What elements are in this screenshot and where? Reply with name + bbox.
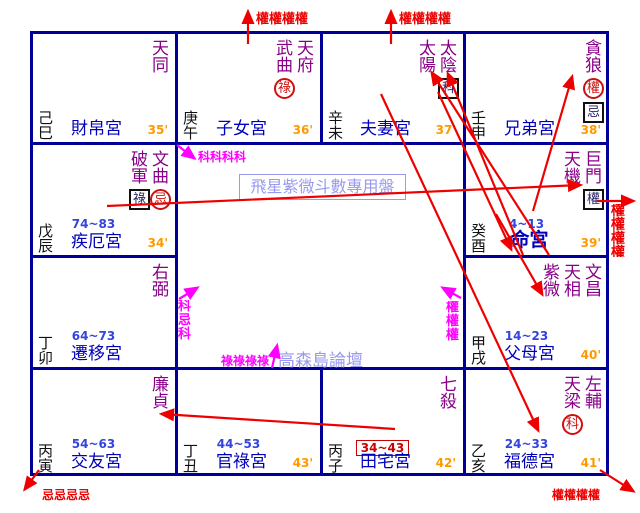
transform-label: 科忌科 (178, 300, 191, 342)
char: 府 (297, 58, 314, 75)
transform-label: 權權權權 (552, 486, 600, 503)
palace-子女宮: 武曲祿天府庚午子女宮36' (176, 32, 321, 143)
palace-疾厄宮: 破軍祿文曲忌74~83戊辰疾厄宮34' (31, 143, 176, 256)
star-name: 左輔 (585, 377, 602, 411)
star-name: 天相 (564, 265, 581, 299)
star-column: 七殺 (438, 377, 459, 411)
char: 陽 (419, 58, 436, 75)
self-transform-circle-mark: 權 (583, 78, 604, 99)
star-column: 天同 (150, 41, 171, 75)
char: 科 (178, 328, 191, 342)
star-group: 天機巨門權 (562, 152, 604, 210)
char: 忌 (178, 314, 191, 328)
star-column: 文曲忌 (150, 152, 171, 210)
inward-transform-box-mark: 權 (583, 189, 604, 210)
star-column: 廉貞 (150, 377, 171, 411)
star-column: 天機 (562, 152, 583, 210)
star-group: 紫微天相文昌 (541, 265, 604, 299)
star-column: 武曲祿 (274, 41, 295, 99)
char: 權 (611, 232, 625, 246)
transform-label: 權權權 (446, 301, 459, 343)
palace-田宅宮: 七殺34~43丙子田宅宮42' (321, 368, 464, 476)
char: 殺 (440, 394, 457, 411)
char: 權 (446, 301, 459, 315)
palace-name: 福德宮 (464, 447, 595, 472)
palace-name: 交友宮 (31, 447, 162, 472)
char: 梁 (564, 394, 581, 411)
star-name: 文昌 (585, 265, 602, 299)
star-name: 太陽 (419, 41, 436, 75)
star-column: 左輔 (583, 377, 604, 435)
star-column: 右弼 (150, 265, 171, 299)
star-column: 天相 (562, 265, 583, 299)
self-transform-circle-mark: 祿 (274, 78, 295, 99)
palace-name: 遷移宮 (31, 339, 162, 364)
palace-命宮: 天機巨門權4~13癸酉命宮39' (464, 143, 609, 256)
star-name: 廉貞 (152, 377, 169, 411)
star-column: 天府 (295, 41, 316, 99)
star-name: 紫微 (543, 265, 560, 299)
palace-name: 官祿宮 (176, 447, 307, 472)
palace-交友宮: 廉貞54~63丙寅交友宮 (31, 368, 176, 476)
star-column: 貪狼權忌 (583, 41, 604, 123)
star-column: 紫微 (541, 265, 562, 299)
star-group: 七殺 (438, 377, 459, 411)
transform-label: 祿祿祿祿 (221, 352, 269, 369)
palace-name: 父母宮 (464, 339, 595, 364)
star-column: 天梁科 (562, 377, 583, 435)
palace-夫妻宮: 太陽太陰科辛未夫妻宮37' (321, 32, 464, 143)
minute-mark: 42' (436, 456, 456, 470)
minute-mark: 43' (293, 456, 313, 470)
star-column: 巨門權 (583, 152, 604, 210)
self-transform-circle-mark: 科 (562, 414, 583, 435)
star-name: 貪狼 (585, 41, 602, 75)
star-name: 武曲 (276, 41, 293, 75)
palace-name: 田宅宮 (321, 447, 450, 472)
star-name: 右弼 (152, 265, 169, 299)
star-name: 天府 (297, 41, 314, 75)
inward-transform-box-mark: 祿 (129, 189, 150, 210)
char: 曲 (152, 169, 169, 186)
star-group: 武曲祿天府 (274, 41, 316, 99)
char: 權 (611, 218, 625, 232)
char: 軍 (131, 169, 148, 186)
char: 機 (564, 169, 581, 186)
transform-label: 忌忌忌忌 (42, 486, 90, 503)
char: 同 (152, 58, 169, 75)
char: 輔 (585, 394, 602, 411)
minute-mark: 38' (581, 123, 601, 137)
char: 曲 (276, 58, 293, 75)
star-group: 右弼 (150, 265, 171, 299)
star-column: 文昌 (583, 265, 604, 299)
char: 貞 (152, 394, 169, 411)
char: 門 (585, 169, 602, 186)
palace-name: 命宮 (464, 225, 595, 252)
palace-name: 子女宮 (176, 114, 307, 139)
minute-mark: 36' (293, 123, 313, 137)
minute-mark: 35' (148, 123, 168, 137)
palace-name: 兄弟宮 (464, 114, 595, 139)
minute-mark: 34' (148, 236, 168, 250)
star-group: 貪狼權忌 (583, 41, 604, 123)
star-name: 七殺 (440, 377, 457, 411)
palace-官祿宮: 44~53丁丑官祿宮43' (176, 368, 321, 476)
minute-mark: 40' (581, 348, 601, 362)
inward-transform-box-mark: 科 (438, 78, 459, 99)
char: 狼 (585, 58, 602, 75)
forum-watermark: 高森島論壇 (278, 346, 363, 371)
star-name: 天梁 (564, 377, 581, 411)
star-group: 破軍祿文曲忌 (129, 152, 171, 210)
ziwei-chart: 飛星紫微斗數專用盤 高森島論壇 天同己巳財帛宮35'武曲祿天府庚午子女宮36'太… (0, 0, 640, 513)
star-name: 破軍 (131, 152, 148, 186)
char: 權 (446, 329, 459, 343)
palace-財帛宮: 天同己巳財帛宮35' (31, 32, 176, 143)
star-column: 破軍祿 (129, 152, 150, 210)
palace-name: 財帛宮 (31, 114, 162, 139)
char: 微 (543, 282, 560, 299)
char: 相 (564, 282, 581, 299)
transform-label: 權權權權 (256, 8, 308, 27)
transform-label: 權權權權 (399, 8, 451, 27)
star-name: 太陰 (440, 41, 457, 75)
star-group: 天梁科左輔 (562, 377, 604, 435)
star-name: 文曲 (152, 152, 169, 186)
palace-父母宮: 紫微天相文昌14~23甲戌父母宮40' (464, 256, 609, 368)
char: 陰 (440, 58, 457, 75)
transform-label: 權權權權 (611, 204, 625, 257)
palace-兄弟宮: 貪狼權忌壬申兄弟宮38' (464, 32, 609, 143)
star-group: 天同 (150, 41, 171, 75)
star-name: 天同 (152, 41, 169, 75)
star-group: 廉貞 (150, 377, 171, 411)
star-group: 太陽太陰科 (417, 41, 459, 99)
chart-title-box: 飛星紫微斗數專用盤 (239, 174, 406, 200)
char: 權 (446, 315, 459, 329)
star-column: 太陰科 (438, 41, 459, 99)
char: 科 (178, 300, 191, 314)
self-transform-circle-mark: 忌 (150, 189, 171, 210)
transform-label: 科科科科 (198, 148, 246, 165)
char: 昌 (585, 282, 602, 299)
char: 弼 (152, 282, 169, 299)
char: 權 (611, 204, 625, 218)
star-name: 巨門 (585, 152, 602, 186)
palace-name: 疾厄宮 (31, 227, 162, 252)
minute-mark: 39' (581, 236, 601, 250)
char: 權 (611, 246, 625, 257)
palace-遷移宮: 右弼64~73丁卯遷移宮 (31, 256, 176, 368)
palace-福德宮: 天梁科左輔24~33乙亥福德宮41' (464, 368, 609, 476)
palace-name: 夫妻宮 (321, 114, 450, 139)
minute-mark: 41' (581, 456, 601, 470)
star-column: 太陽 (417, 41, 438, 99)
minute-mark: 37' (436, 123, 456, 137)
star-name: 天機 (564, 152, 581, 186)
